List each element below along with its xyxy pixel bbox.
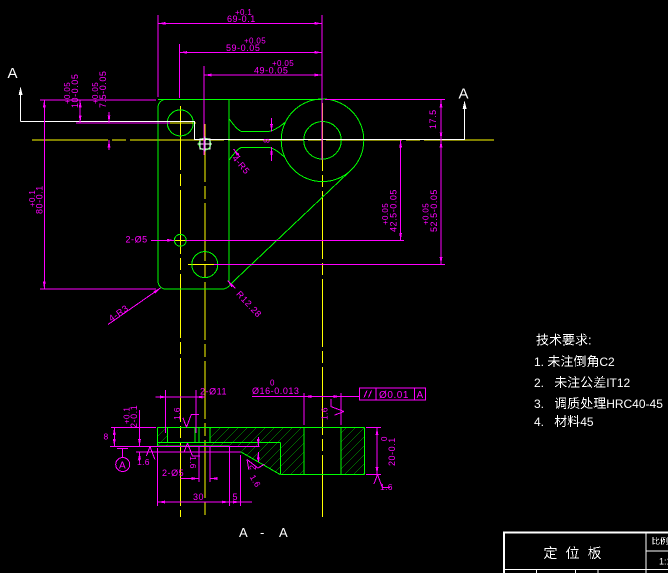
svg-text:+0.05: +0.05 bbox=[381, 203, 390, 225]
svg-text:17.5: 17.5 bbox=[428, 109, 438, 129]
svg-text:+0.1: +0.1 bbox=[123, 407, 132, 424]
svg-text:1.6: 1.6 bbox=[172, 407, 182, 420]
svg-text:8: 8 bbox=[104, 432, 109, 442]
svg-text:A: A bbox=[239, 525, 248, 540]
svg-text:+0.05: +0.05 bbox=[272, 59, 294, 68]
svg-text:1.6: 1.6 bbox=[188, 456, 198, 469]
svg-text:1.6: 1.6 bbox=[380, 482, 393, 492]
svg-text:1:1: 1:1 bbox=[659, 557, 668, 567]
svg-text:2-Ø5: 2-Ø5 bbox=[126, 234, 148, 244]
svg-text:2-Ø5: 2-Ø5 bbox=[162, 468, 184, 478]
svg-text:+0.1: +0.1 bbox=[28, 190, 37, 207]
svg-text:1.6: 1.6 bbox=[137, 457, 150, 467]
svg-text:2-Ø11: 2-Ø11 bbox=[200, 387, 227, 397]
svg-text:+0.05: +0.05 bbox=[422, 203, 431, 225]
svg-text:45: 45 bbox=[580, 415, 594, 429]
svg-text:HRC40-45: HRC40-45 bbox=[606, 397, 663, 411]
svg-text:5: 5 bbox=[233, 492, 239, 502]
svg-text:+0.1: +0.1 bbox=[235, 8, 252, 17]
svg-text:A: A bbox=[279, 525, 288, 540]
svg-text:A: A bbox=[8, 65, 18, 82]
svg-text:+0.05: +0.05 bbox=[244, 37, 266, 46]
svg-text:A: A bbox=[119, 461, 126, 472]
svg-text:30: 30 bbox=[193, 492, 204, 502]
svg-text:A: A bbox=[417, 390, 424, 401]
svg-text:8: 8 bbox=[263, 138, 272, 143]
svg-text:1.: 1. bbox=[534, 355, 544, 369]
svg-text:0: 0 bbox=[380, 436, 389, 441]
svg-text:2.: 2. bbox=[534, 376, 544, 390]
svg-text:4.: 4. bbox=[534, 415, 544, 429]
svg-text:+0.05: +0.05 bbox=[63, 82, 72, 104]
svg-text:Ø0.01: Ø0.01 bbox=[379, 390, 409, 401]
svg-text:+0.05: +0.05 bbox=[91, 82, 100, 104]
svg-text:-: - bbox=[260, 525, 264, 540]
svg-text:1.6: 1.6 bbox=[320, 407, 330, 420]
svg-text:52.5-0.05: 52.5-0.05 bbox=[429, 189, 439, 232]
svg-text:C2: C2 bbox=[599, 355, 615, 369]
svg-text:0: 0 bbox=[270, 379, 275, 388]
svg-text:Ø16-0.013: Ø16-0.013 bbox=[252, 386, 299, 396]
svg-text:IT12: IT12 bbox=[606, 376, 630, 390]
svg-text:42.5-0.05: 42.5-0.05 bbox=[389, 189, 399, 232]
svg-text::: : bbox=[588, 333, 592, 348]
svg-text:3.: 3. bbox=[534, 397, 544, 411]
svg-text:A: A bbox=[459, 86, 469, 103]
